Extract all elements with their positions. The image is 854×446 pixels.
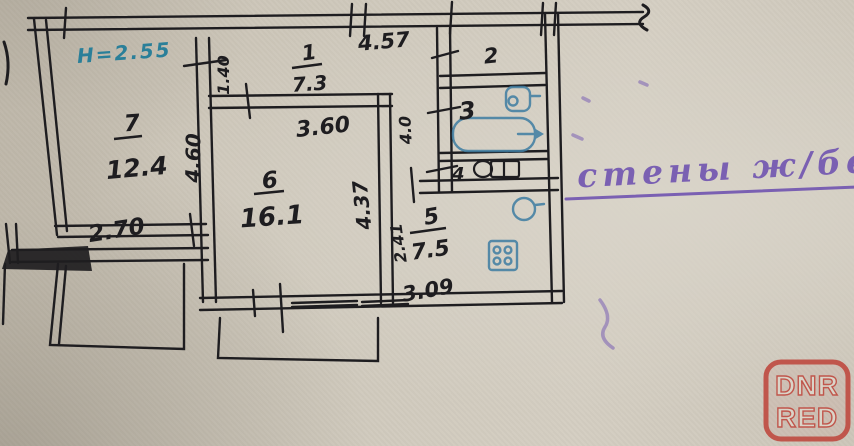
marker-smudges: [573, 82, 647, 348]
right-outer-wall: [545, 13, 564, 302]
room-6-area-label: 16.1: [239, 200, 305, 234]
dim-room6-width: 3.60: [295, 112, 352, 143]
dim-top-wall: 4.57: [356, 27, 411, 56]
dim-kitchen-height: 2.41: [386, 222, 410, 264]
room-5-area-label: 7.5: [409, 236, 451, 266]
logo-line1: DNR: [775, 370, 839, 401]
top-outer-wall: [28, 2, 649, 38]
left-outer-wall: [4, 19, 67, 235]
dim-hall-height: 1.40: [214, 55, 233, 94]
ceiling-height-note: Н=2.55: [76, 37, 172, 68]
room-4-number: 4: [451, 164, 465, 185]
room-5-number: 5: [422, 204, 441, 231]
room-3-number: 3: [457, 96, 477, 126]
dim-room7-height: 4.60: [181, 133, 206, 184]
room-7-area-label: 12.4: [105, 151, 169, 185]
dim-corridor-length: 4.0: [395, 115, 416, 145]
kitchen-top-wall: [411, 168, 558, 202]
toilet-icon: [474, 161, 519, 177]
kitchen-sink-icon: [513, 198, 544, 220]
room-2-number: 2: [483, 43, 500, 68]
wall-material-text: стены ж/бет.: [576, 138, 854, 195]
room-6-number: 6: [261, 167, 279, 194]
balcony-center: [218, 318, 378, 361]
wall-material-note: стены ж/бет.: [566, 82, 854, 348]
dim-room7-width: 2.70: [86, 213, 146, 248]
room6-right-wall: [378, 94, 393, 303]
bath-sink-icon: [506, 87, 540, 111]
balcony-left: [50, 264, 184, 349]
room-1-area-label: 7.3: [291, 70, 328, 96]
logo-line2: RED: [776, 402, 838, 433]
room-1-number: 1: [300, 40, 318, 66]
room-7-number: 7: [123, 110, 141, 137]
dnr-red-logo: DNR RED: [766, 362, 848, 439]
dim-kitchen-width: 3.09: [400, 274, 455, 307]
dim-room6-height: 4.37: [347, 179, 376, 232]
stove-icon: [489, 241, 517, 270]
floor-plan-photo: 7 12.4 1 7.3 6 16.1 5 7.5 2 3 4 4.57 2.7…: [0, 0, 854, 446]
